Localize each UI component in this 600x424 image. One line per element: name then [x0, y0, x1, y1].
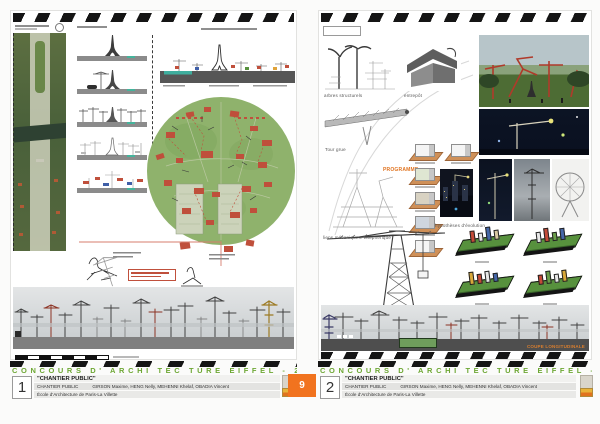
titleband-2: CONCOURS D' ARCHI TEC TURE EIFFEL - 2008…: [318, 361, 598, 399]
board-number: 1: [12, 376, 32, 399]
competition-title: CONCOURS D' ARCHI TEC TURE EIFFEL - 2008: [12, 366, 297, 375]
phase-elevation-1: [75, 33, 149, 63]
caption-structural-trees: arbres structurels: [324, 93, 362, 98]
aerial-map: [13, 33, 66, 251]
team-label: CHANTIER PUBLIC: [37, 384, 78, 389]
program-module: [445, 139, 477, 161]
hazard-stripe-top: [321, 13, 589, 22]
section-caption: [201, 28, 257, 30]
board-1: [10, 10, 297, 360]
barge-model: [455, 261, 519, 308]
titleband-1: CONCOURS D' ARCHI TEC TURE EIFFEL - 2008…: [10, 361, 316, 399]
module-caption: [415, 210, 435, 212]
program-module: [409, 163, 441, 185]
phase-elevation-3: [75, 99, 149, 129]
site-section-drawing: [157, 37, 298, 89]
team-row: CHANTIER PUBLICGIRSON Maxime, HENG Nelly…: [342, 383, 576, 390]
barge-model: [455, 219, 519, 266]
competition-title: CONCOURS D' ARCHI TEC TURE EIFFEL - 2008: [320, 366, 592, 375]
project-title: "CHANTIER PUBLIC": [34, 375, 280, 382]
school-row: École d'Architecture de Paris-La Villett…: [342, 391, 576, 398]
crane-detail-sketch: [77, 249, 137, 289]
render-night-crane: [479, 109, 589, 155]
sketch-warehouse: [403, 39, 461, 91]
photo-crane-detail: [514, 159, 550, 221]
barge-model: [523, 219, 587, 266]
program-module: [409, 139, 441, 161]
program-module: [409, 187, 441, 209]
team-label: CHANTIER PUBLIC: [345, 384, 386, 389]
longitudinal-section-panorama: COUPE LONGITUDINALE: [321, 305, 589, 351]
page: arbres structurels entrepôt: [0, 0, 600, 424]
phase-elevation-4: [75, 132, 149, 162]
phase-elevation-2: [75, 66, 149, 96]
barge-model: [523, 261, 587, 308]
stamp-logo: [580, 375, 591, 397]
phases-caption: [77, 26, 107, 28]
sketch-crane-jib: [323, 105, 411, 145]
scale-caption: [113, 356, 139, 358]
scale-bar: [15, 355, 109, 360]
project-title: "CHANTIER PUBLIC": [342, 375, 576, 382]
module-caption: [451, 162, 471, 164]
team-members: GIRSON Maxime, HENG Nelly, MEHENNI Khela…: [92, 384, 229, 389]
page-number-badge: 9: [288, 374, 316, 397]
caption-tower-crane: Tour grue: [325, 147, 346, 152]
render-day-park-cranes: [479, 35, 589, 107]
caption-section: COUPE LONGITUDINALE: [527, 344, 585, 349]
team-members: GIRSON Maxime, HENG Nelly, MEHENNI Khela…: [400, 384, 537, 389]
north-arrow-icon: [55, 23, 64, 32]
phase-elevation-5: [75, 165, 149, 195]
sketch-structural-trees: [323, 39, 397, 91]
caption-warehouse: entrepôt: [404, 93, 422, 98]
school-row: École d'Architecture de Paris-La Villett…: [34, 391, 280, 398]
barge-caption: [543, 261, 557, 263]
circular-site-plan: [146, 96, 296, 246]
photo-wheel-sketch: [552, 159, 589, 221]
green-basin: [399, 338, 437, 348]
crane-panorama-elevation: [13, 287, 294, 349]
board-2: arbres structurels entrepôt: [318, 10, 592, 360]
module-caption: [415, 162, 435, 164]
photo-night-tower: [479, 159, 512, 221]
hazard-stripe-top: [13, 13, 294, 22]
board-number: 2: [320, 376, 340, 399]
team-row: CHANTIER PUBLICGIRSON Maxime, HENG Nelly…: [34, 383, 280, 390]
module-caption: [415, 186, 435, 188]
barge-caption: [475, 261, 489, 263]
photo-night-city: [440, 169, 473, 217]
hazard-stripe-bottom: [321, 352, 589, 359]
